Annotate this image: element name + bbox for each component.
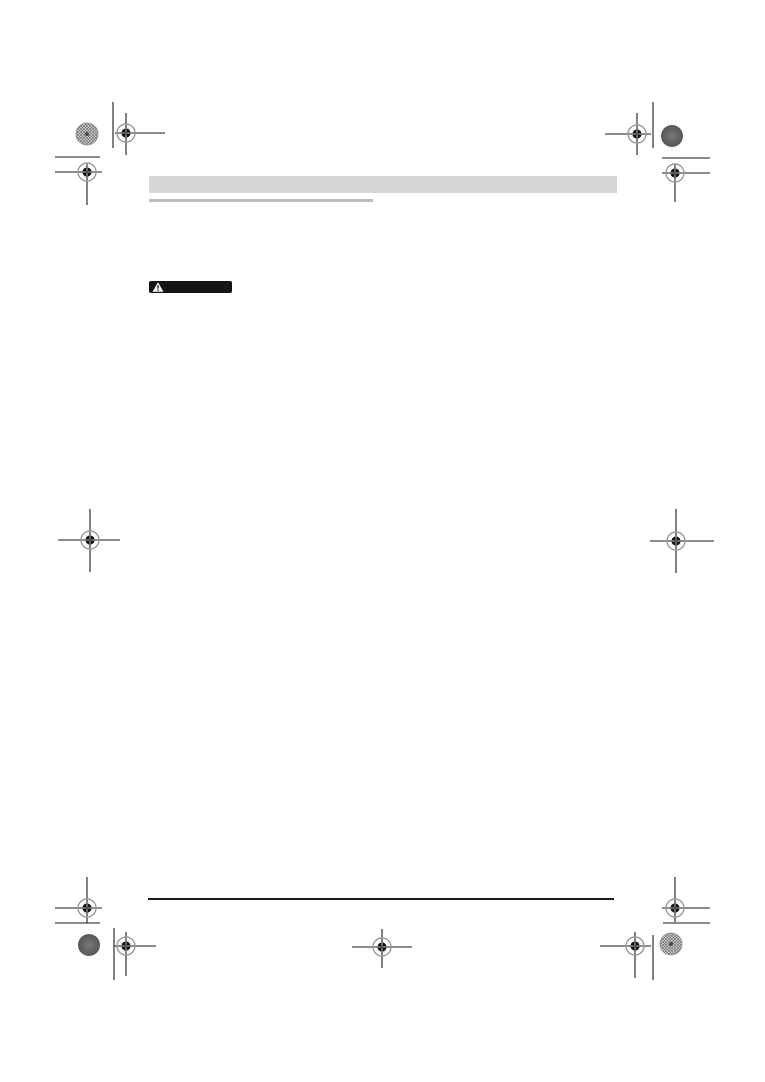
registration-mark-icon: [662, 877, 710, 922]
color-patch-icon: [660, 933, 682, 955]
color-patch-icon: [661, 125, 683, 147]
registration-mark-icon: [352, 929, 412, 968]
registration-mark-icon: [650, 509, 714, 573]
registration-mark-icon: [605, 113, 651, 155]
registration-mark-icon: [55, 877, 102, 923]
warning-label: [149, 281, 232, 293]
registration-mark-icon: [600, 932, 651, 978]
color-patch-icon: [76, 123, 98, 145]
heading-underline: [149, 199, 373, 202]
warning-triangle-icon: [152, 282, 164, 292]
footer-rule: [148, 898, 614, 900]
print-marks-layer: [0, 0, 765, 1082]
registration-mark-icon: [115, 113, 165, 155]
registration-mark-icon: [114, 932, 156, 976]
registration-mark-icon: [55, 163, 102, 205]
document-page: [0, 0, 765, 1082]
registration-mark-icon: [58, 509, 120, 572]
header-bar: [149, 176, 617, 193]
color-patch-icon: [78, 934, 100, 956]
registration-mark-icon: [662, 164, 710, 202]
